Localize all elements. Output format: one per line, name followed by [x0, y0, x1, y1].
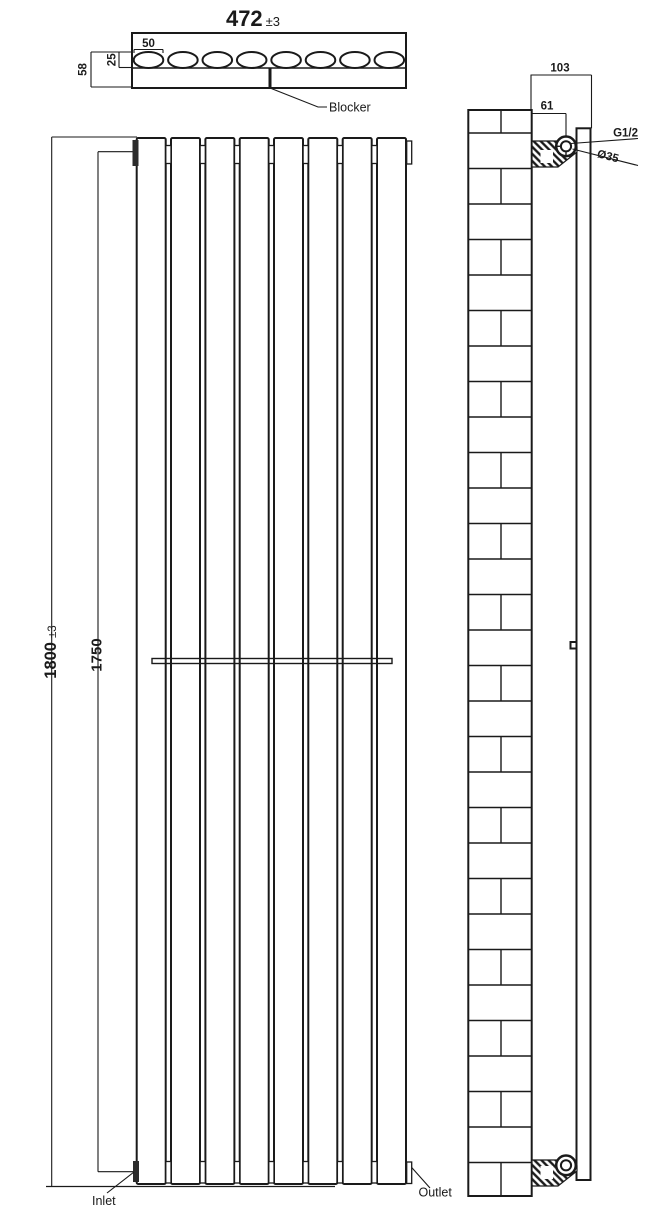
column-oval	[203, 52, 233, 68]
technical-drawing-radiator: Blocker 472±3 50 25 58 1800±3 1750	[0, 0, 646, 1223]
panel-connector-bottom	[235, 1162, 240, 1184]
column-oval	[271, 52, 301, 68]
radiator-panel	[274, 138, 303, 1184]
column-oval	[375, 52, 405, 68]
blocker-leader-line	[270, 88, 327, 107]
oval-depth-dimension-text: 25	[107, 53, 119, 66]
wall-depth-dimension-text: 103	[550, 63, 569, 75]
panel-connector-bottom	[372, 1162, 377, 1184]
panel-connector-top	[372, 146, 377, 164]
radiator-panels-group	[137, 138, 406, 1184]
column-oval	[168, 52, 198, 68]
radiator-panel	[171, 138, 200, 1184]
panel-connector-bottom	[200, 1162, 205, 1184]
height-dimension-text: 1800±3	[42, 625, 60, 678]
bracket-notch-top	[541, 150, 554, 163]
panel-connector-bottom	[269, 1162, 274, 1184]
radiator-panel	[240, 138, 269, 1184]
panel-connector-top	[200, 146, 205, 164]
panel-connector-top	[303, 146, 308, 164]
front-view: 1800±3 1750 Inlet Outlet	[42, 137, 452, 1208]
column-oval	[306, 52, 336, 68]
radiator-panel	[308, 138, 337, 1184]
radiator-panel	[205, 138, 234, 1184]
bracket-projection-dimension-text: 61	[541, 101, 554, 113]
outlet-tab-bottom	[407, 1162, 412, 1184]
side-view: 103 61 G1/2 Ø35	[468, 63, 638, 1197]
outlet-tab-top	[407, 141, 412, 164]
bracket-notch-bottom	[541, 1166, 554, 1179]
radiator-panel	[137, 138, 166, 1184]
blocker-label: Blocker	[329, 101, 371, 115]
outlet-label: Outlet	[419, 1186, 453, 1200]
panel-connector-top	[269, 146, 274, 164]
overall-width-dimension-text: 472±3	[226, 6, 280, 31]
panel-connector-bottom	[337, 1162, 342, 1184]
total-depth-dimension-text: 58	[78, 63, 90, 76]
top-view: Blocker 472±3 50 25 58	[78, 6, 407, 115]
panel-connector-bottom	[166, 1162, 171, 1184]
panel-connector-top	[166, 146, 171, 164]
column-oval	[134, 52, 164, 68]
thread-size-label: G1/2	[613, 128, 638, 140]
mounting-clip-marker	[571, 642, 577, 649]
radiator-side-profile	[577, 128, 591, 1180]
panel-connector-top	[235, 146, 240, 164]
column-oval	[340, 52, 370, 68]
inlet-tab-top	[133, 140, 139, 166]
inlet-leader-line	[107, 1172, 134, 1193]
inlet-label: Inlet	[92, 1194, 116, 1208]
valve-connection-bottom-outer	[556, 1156, 576, 1176]
panel-connector-top	[337, 146, 342, 164]
pipe-centres-dimension-text: 1750	[89, 638, 106, 671]
connection-diameter-label: Ø35	[596, 148, 621, 165]
column-oval	[237, 52, 267, 68]
radiator-panel	[343, 138, 372, 1184]
inlet-tab-bottom	[133, 1161, 139, 1182]
wall-outline	[468, 110, 531, 1196]
panel-connector-bottom	[303, 1162, 308, 1184]
pitch-dimension-text: 50	[142, 38, 155, 50]
